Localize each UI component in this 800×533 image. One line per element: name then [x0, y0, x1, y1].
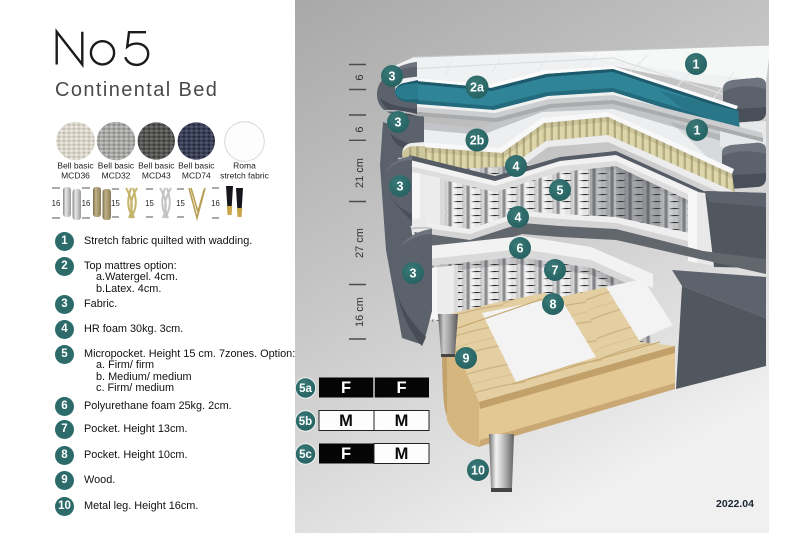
svg-text:5a: 5a [299, 383, 312, 395]
svg-text:5b: 5b [299, 416, 312, 428]
svg-text:F: F [396, 379, 406, 397]
svg-text:27 cm: 27 cm [354, 228, 366, 258]
svg-text:3: 3 [397, 180, 404, 194]
svg-text:M: M [395, 445, 409, 463]
svg-text:6: 6 [517, 242, 524, 256]
svg-text:M: M [395, 412, 409, 430]
svg-text:1: 1 [693, 58, 700, 72]
svg-text:8: 8 [550, 298, 557, 312]
svg-text:16 cm: 16 cm [354, 297, 366, 327]
svg-text:3: 3 [395, 116, 402, 130]
svg-text:5c: 5c [299, 449, 312, 461]
svg-text:9: 9 [463, 352, 470, 366]
svg-text:1: 1 [694, 124, 701, 138]
svg-text:F: F [341, 379, 351, 397]
svg-text:2b: 2b [470, 134, 485, 148]
svg-text:5: 5 [557, 184, 564, 198]
svg-text:21 cm: 21 cm [354, 158, 366, 188]
svg-text:F: F [341, 445, 351, 463]
svg-text:4: 4 [515, 211, 522, 225]
svg-text:10: 10 [471, 464, 485, 478]
svg-text:M: M [339, 412, 353, 430]
svg-text:7: 7 [552, 264, 559, 278]
svg-text:4: 4 [513, 160, 520, 174]
svg-text:6: 6 [354, 74, 366, 80]
svg-text:2a: 2a [470, 81, 485, 95]
svg-text:3: 3 [389, 70, 396, 84]
svg-text:2022.04: 2022.04 [716, 498, 754, 510]
svg-text:3: 3 [410, 267, 417, 281]
svg-text:6: 6 [354, 126, 366, 132]
